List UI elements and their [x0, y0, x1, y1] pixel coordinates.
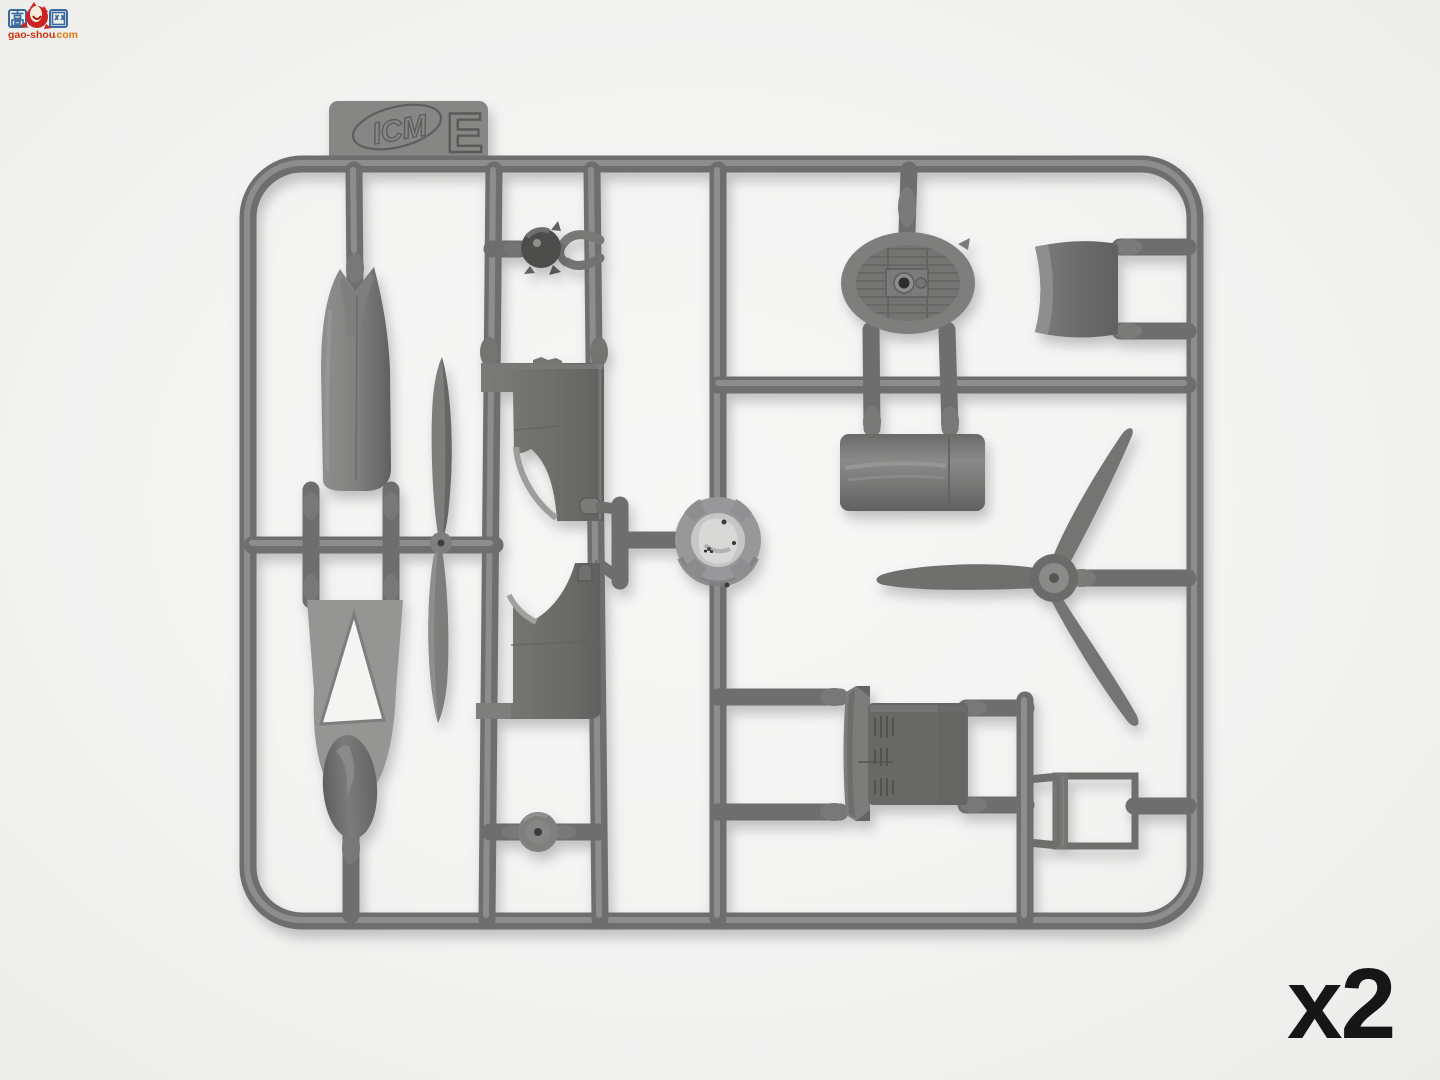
svg-text:.com: .com	[54, 29, 79, 41]
svg-text:x2: x2	[1287, 948, 1394, 1060]
svg-text:E: E	[446, 101, 483, 164]
svg-text:gao-shou: gao-shou	[8, 29, 55, 41]
